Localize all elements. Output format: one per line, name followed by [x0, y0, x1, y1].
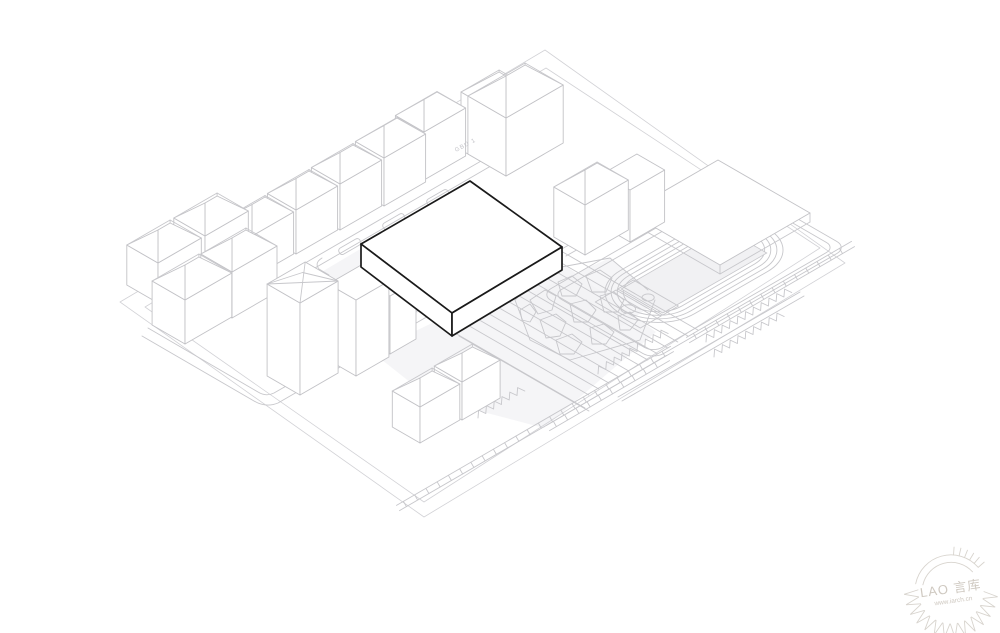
watermark: LAO 言库 www.iarch.cn	[899, 542, 1000, 633]
screenshot-stage: GBU 1 LAO 言库 www.iarch.cn	[0, 0, 1000, 633]
context-building	[392, 368, 460, 443]
context-building	[267, 262, 338, 395]
watermark-line1: LAO 言库	[919, 577, 982, 600]
context-building	[554, 162, 629, 255]
site-axonometric-diagram: GBU 1 LAO 言库 www.iarch.cn	[0, 0, 1000, 633]
